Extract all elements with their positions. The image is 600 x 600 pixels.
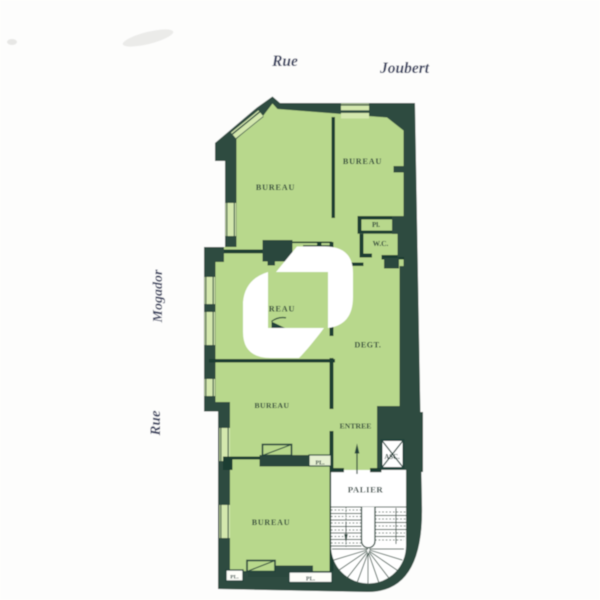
svg-text:ENTREE: ENTREE	[340, 422, 372, 431]
svg-text:PL.: PL.	[306, 577, 316, 583]
svg-text:ASC.: ASC.	[384, 454, 400, 461]
svg-text:Mogador: Mogador	[151, 269, 166, 323]
svg-text:PL.: PL.	[315, 460, 325, 466]
svg-text:BUREAU: BUREAU	[256, 183, 295, 192]
svg-text:Rue: Rue	[148, 410, 164, 436]
svg-text:Rue: Rue	[271, 53, 298, 70]
svg-text:Joubert: Joubert	[379, 60, 430, 77]
svg-text:DEGT.: DEGT.	[354, 341, 381, 350]
svg-text:BUREAU: BUREAU	[254, 401, 289, 410]
svg-text:PALIER: PALIER	[348, 485, 384, 495]
svg-text:BUREAU: BUREAU	[343, 157, 382, 166]
svg-text:Pl.: Pl.	[372, 221, 380, 229]
svg-text:PL.: PL.	[230, 575, 239, 581]
svg-text:W.C.: W.C.	[373, 239, 389, 248]
svg-text:BUREAU: BUREAU	[252, 518, 291, 527]
